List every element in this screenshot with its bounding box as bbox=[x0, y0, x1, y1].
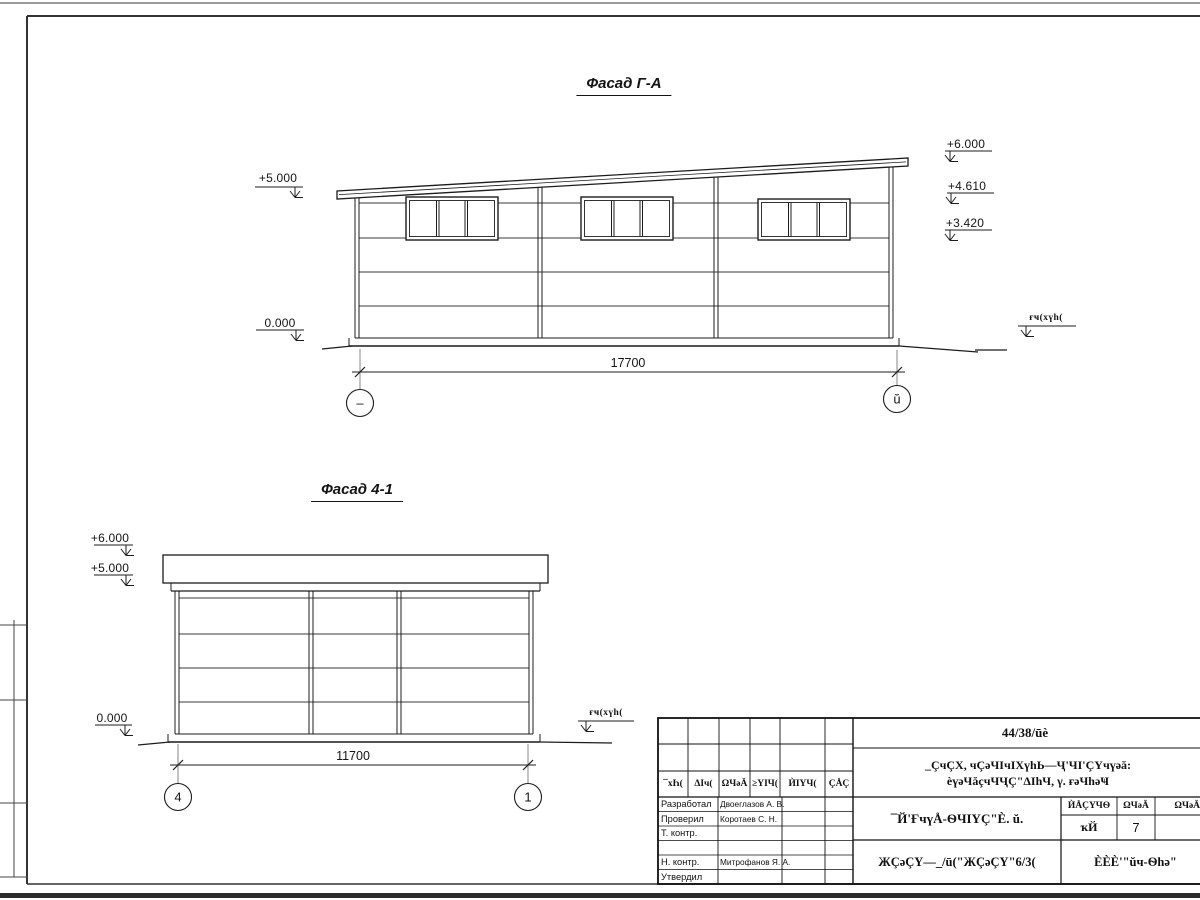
col-header: ≥ΥΙЧ( bbox=[750, 771, 780, 797]
name-cell bbox=[718, 826, 784, 841]
facade-top-title: Фасад Г-А bbox=[576, 75, 671, 96]
window bbox=[581, 197, 673, 240]
sheets-col-header: ΩЧәĂIΥ bbox=[1155, 797, 1200, 815]
object-name: ¯Й'ҒчүÅ-ѲЧΙΥÇ"È. ŭ. bbox=[853, 797, 1061, 840]
elevation-label: +5.000 bbox=[259, 171, 297, 185]
role-cell: Н. контр. bbox=[658, 855, 721, 870]
window bbox=[758, 199, 850, 240]
stage-col-header: ЍÅÇΥЧѲ bbox=[1061, 797, 1117, 815]
name-cell bbox=[718, 841, 784, 856]
elevation-label: 0.000 bbox=[264, 316, 295, 330]
window bbox=[406, 197, 498, 240]
name-cell: Митрофанов Я. А. bbox=[718, 855, 784, 870]
stage-value: ҡЙ bbox=[1061, 815, 1117, 840]
left-margin-table bbox=[0, 620, 27, 877]
role-cell: Утвердил bbox=[658, 870, 721, 885]
facade-bottom-title: Фасад 4-1 bbox=[311, 481, 403, 502]
col-header: ΔΙч( bbox=[688, 771, 719, 797]
elevation-label: +4.610 bbox=[948, 179, 986, 193]
col-header: ΩЧәĂ bbox=[719, 771, 750, 797]
project-title-line1: _ÇчÇХ, чÇәЧΙчΙХүhЬ—Ҷ'ЧΙ'ÇҮчүәă: bbox=[925, 757, 1131, 773]
dimension-label: 17700 bbox=[611, 356, 646, 370]
role-cell bbox=[658, 841, 721, 856]
elevation-label: +3.420 bbox=[946, 216, 984, 230]
elevation-label: +5.000 bbox=[91, 561, 129, 575]
col-header: ¯хҺ( bbox=[658, 771, 688, 797]
doc-number: 44/38/ūè bbox=[860, 718, 1190, 748]
name-cell: Коротаев С. Н. bbox=[718, 812, 784, 827]
sheet-value: 7 bbox=[1117, 815, 1155, 840]
axis-label: 1 bbox=[524, 790, 531, 805]
dimension-label: 11700 bbox=[336, 749, 370, 763]
col-header: ЍΙΥЧ( bbox=[780, 771, 825, 797]
project-title-line2: èүәЧăçчЧҶÇ"ΔΙһЧ, γ. ғәЧһәҸ bbox=[947, 773, 1109, 789]
role-cell: Разработал bbox=[658, 797, 721, 812]
ground-level-label: ғҹ(хүh( bbox=[589, 708, 623, 718]
facade-bottom-drawing bbox=[94, 545, 634, 811]
col-header: ÇÅÇ bbox=[825, 771, 853, 797]
role-cell: Т. контр. bbox=[658, 826, 721, 841]
company-name: ÈÈÈ'"ŭч-Ѳһә" bbox=[1061, 840, 1200, 884]
sheet-col-header: ΩЧәĂ bbox=[1117, 797, 1155, 815]
role-cell: Проверил bbox=[658, 812, 721, 827]
ground-level-label: ғҹ(хүh( bbox=[1029, 313, 1063, 323]
name-cell bbox=[718, 870, 784, 885]
sheet-code: ЖÇәÇΥ—_/ū("ЖÇәÇΥ"6/3( bbox=[853, 840, 1061, 884]
elevation-label: 0.000 bbox=[96, 711, 127, 725]
name-cell: Двоеглазов А. В. bbox=[718, 797, 784, 812]
elevation-label: +6.000 bbox=[947, 137, 985, 151]
axis-label: 4 bbox=[174, 790, 181, 805]
axis-label: – bbox=[356, 396, 363, 411]
axis-label: ŭ bbox=[893, 392, 900, 407]
project-title: _ÇчÇХ, чÇәЧΙчΙХүhЬ—Ҷ'ЧΙ'ÇҮчүәă: èүәЧăçчЧ… bbox=[853, 748, 1200, 797]
elevation-label: +6.000 bbox=[91, 531, 129, 545]
